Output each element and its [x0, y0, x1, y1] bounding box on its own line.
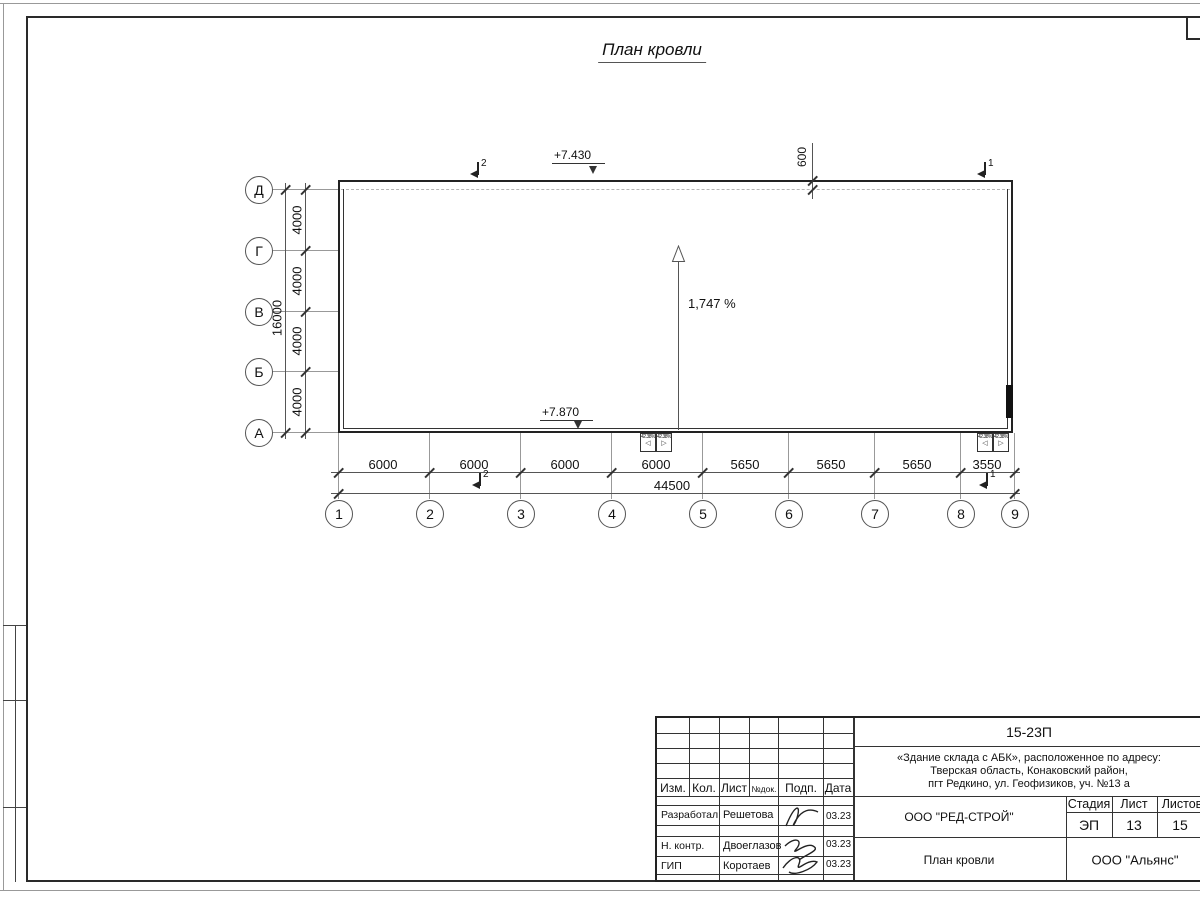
slope-label: 1,747 %	[688, 296, 736, 311]
axis-bubble-row: А	[245, 419, 273, 447]
row-dim-label: 4000	[290, 267, 305, 296]
grid-line-4	[611, 433, 612, 499]
section-mark-number: 1	[988, 158, 994, 169]
stage-label: Стадия	[1068, 797, 1111, 811]
sheet-label: Лист	[1120, 797, 1147, 811]
tb-line	[719, 718, 720, 880]
paper-edge-bottom	[0, 890, 1200, 891]
tb-role: ГИП	[661, 860, 682, 872]
tb-date: 03.23	[826, 859, 851, 870]
canopy-slope-box: 42.38% ▷	[656, 433, 672, 452]
wall-bottom-outer	[338, 431, 1013, 433]
axis-bubble-row: Б	[245, 358, 273, 386]
tb-header-izm: Изм.	[660, 781, 686, 795]
row-dim-label: 4000	[290, 206, 305, 235]
project-address-line3: пгт Редкино, ул. Геофизиков, уч. №13 а	[928, 778, 1130, 790]
tb-name: Решетова	[723, 809, 773, 821]
title-block: Изм. Кол. Лист №док. Подп. Дата Разработ…	[655, 716, 1200, 882]
tb-name: Двоеглазов	[723, 840, 781, 852]
project-address-line1: «Здание склада с АБК», расположенное по …	[897, 752, 1161, 764]
grid-line-1	[338, 433, 339, 499]
tb-line	[853, 837, 1200, 838]
axis-bubble-col: 7	[861, 500, 889, 528]
col-dim-label: 6000	[551, 457, 580, 472]
grid-line-2	[429, 433, 430, 499]
signature-icon	[780, 802, 822, 832]
elevation-mark-top: +7.430	[552, 148, 605, 162]
col-dim-label: 6000	[642, 457, 671, 472]
slope-arrow-head-icon	[671, 245, 686, 263]
project-address-line2: Тверская область, Конаковский район,	[930, 765, 1128, 777]
axis-bubble-col: 6	[775, 500, 803, 528]
section-mark-number: 1	[990, 469, 996, 480]
axis-bubble-col: 9	[1001, 500, 1029, 528]
section-mark-arrow-icon	[472, 481, 480, 489]
col-dim-line	[331, 472, 1020, 473]
section-mark: 1	[979, 162, 997, 182]
paper-edge-top	[0, 3, 1200, 4]
col-total-label: 44500	[654, 478, 690, 493]
wall-left-outer	[338, 180, 340, 433]
offset-dim-label: 600	[795, 147, 809, 167]
canopy-slope-box: 42.38% ◁	[977, 433, 993, 452]
axis-bubble-col: 3	[507, 500, 535, 528]
sheet-title: План кровли	[924, 853, 995, 867]
slope-arrow-left-icon: ◁	[982, 440, 987, 448]
elevation-arrow-icon	[589, 166, 597, 174]
axis-bubble-row: Г	[245, 237, 273, 265]
tb-header-data: Дата	[825, 781, 852, 795]
page-title: План кровли	[598, 40, 706, 63]
col-total-dim-line	[331, 493, 1020, 494]
drawing-sheet: План кровли 4000 4000 4000 4000 16000 Д …	[0, 0, 1200, 900]
contractor-name: ООО "Альянс"	[1092, 853, 1179, 868]
signature-icon	[777, 832, 825, 878]
section-mark-arrow-icon	[979, 481, 987, 489]
axis-bubble-col: 8	[947, 500, 975, 528]
org-name: ООО "РЕД-СТРОЙ"	[904, 810, 1013, 824]
col-dim-label: 5650	[903, 457, 932, 472]
right-wall-feature-mark	[1006, 385, 1013, 418]
tb-name: Коротаев	[723, 860, 771, 872]
tb-line	[853, 796, 1200, 797]
grid-line-6	[788, 433, 789, 499]
paper-edge-left	[3, 3, 4, 890]
axis-bubble-row: В	[245, 298, 273, 326]
tb-date: 03.23	[826, 811, 851, 822]
col-dim-label: 3550	[973, 457, 1002, 472]
section-mark-number: 2	[483, 469, 489, 480]
section-mark-arrow-icon	[977, 170, 985, 178]
row-dim-label: 4000	[290, 388, 305, 417]
sheets-value: 15	[1172, 817, 1188, 833]
slope-arrow-right-icon: ▷	[998, 440, 1003, 448]
section-mark: 2	[474, 473, 492, 493]
frame-corner-box	[1186, 16, 1200, 40]
section-mark: 2	[472, 162, 490, 182]
elevation-value: +7.870	[540, 405, 593, 421]
stage-value: ЭП	[1079, 817, 1099, 833]
slope-arrow-right-icon: ▷	[661, 440, 666, 448]
elevation-mark-bottom: +7.870	[540, 405, 593, 419]
wall-left-inner	[343, 189, 344, 429]
tb-line	[853, 746, 1200, 747]
section-mark-number: 2	[481, 158, 487, 169]
margin-stamp-divider	[15, 625, 16, 882]
slope-arrow-line	[678, 261, 679, 430]
axis-bubble-col: 1	[325, 500, 353, 528]
tb-line	[853, 718, 855, 880]
tb-header-ndok: №док.	[752, 784, 777, 794]
tb-line	[749, 718, 750, 796]
axis-bubble-col: 5	[689, 500, 717, 528]
section-mark-arrow-icon	[470, 170, 478, 178]
section-mark: 1	[981, 473, 999, 493]
axis-bubble-col: 4	[598, 500, 626, 528]
tb-header-podp: Подп.	[785, 781, 817, 795]
grid-line-9	[1014, 433, 1015, 499]
tb-line	[1066, 812, 1200, 813]
tb-line	[689, 718, 690, 796]
tb-header-kol: Кол.	[692, 781, 716, 795]
tb-header-list: Лист	[721, 781, 747, 795]
project-code: 15-23П	[1006, 724, 1052, 740]
tb-role: Разработал	[661, 809, 718, 821]
elevation-value: +7.430	[552, 148, 605, 164]
parapet-dashed-line	[341, 189, 1010, 190]
tb-line	[1112, 796, 1113, 837]
sheets-label: Листов	[1162, 797, 1200, 811]
roof-edge-top	[338, 180, 1013, 182]
wall-bottom-inner	[343, 428, 1008, 429]
elevation-arrow-icon	[574, 421, 582, 429]
row-dim-label: 4000	[290, 327, 305, 356]
tb-role: Н. контр.	[661, 840, 704, 852]
col-dim-label: 5650	[817, 457, 846, 472]
slope-arrow-left-icon: ◁	[645, 440, 650, 448]
tb-line	[1157, 796, 1158, 837]
col-dim-label: 5650	[731, 457, 760, 472]
grid-line-8	[960, 433, 961, 499]
canopy-slope-box: 42.38% ◁	[640, 433, 656, 452]
axis-bubble-row: Д	[245, 176, 273, 204]
grid-line-3	[520, 433, 521, 499]
canopy-slope-box: 42.38% ▷	[993, 433, 1009, 452]
axis-bubble-col: 2	[416, 500, 444, 528]
col-dim-label: 6000	[369, 457, 398, 472]
row-total-dim-line	[285, 183, 286, 439]
grid-line-7	[874, 433, 875, 499]
tb-date: 03.23	[826, 839, 851, 850]
sheet-value: 13	[1126, 817, 1142, 833]
grid-line-5	[702, 433, 703, 499]
